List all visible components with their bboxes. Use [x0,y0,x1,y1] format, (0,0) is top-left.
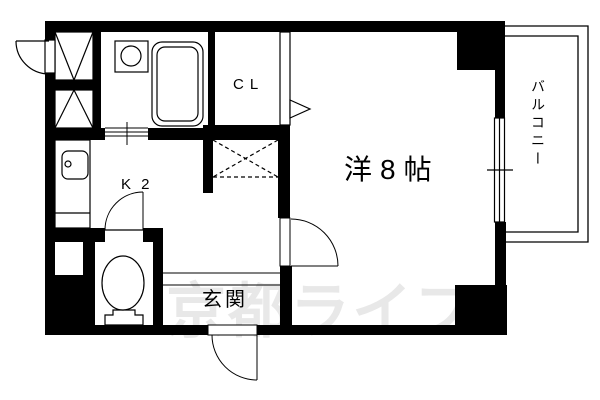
closet-door-leaf [280,32,290,125]
wall-bathroom-left [93,32,101,128]
closet-door-swing-triangle [290,100,310,118]
toilet-door-swing-arc [105,192,143,230]
bathroom-folding-door [105,122,148,145]
bathtub-outer [152,42,203,126]
toilet-tank [105,310,143,325]
wall-bottom [45,325,507,335]
toilet-bowl [102,256,144,310]
wall-bathroom-right [208,32,215,128]
service-door-swing-arc [16,41,49,74]
wall-band-left [55,128,105,140]
toilet-door [105,192,143,230]
bathroom [115,41,203,126]
balcony-window [487,118,513,222]
wall-toilet-right [153,230,163,325]
main-room-door-leaf [280,218,290,266]
wall-fridge-left-stub [203,140,213,193]
front-door-swing-arc [212,335,257,380]
closet-label: CL [233,77,264,92]
front-door-leaf [208,325,257,335]
balcony-outer-line [505,26,588,242]
shaft-x-boxes [55,32,93,128]
wall-top-right-block [457,21,505,70]
shaft-box-lower [55,90,93,128]
exterior-service-door [16,40,55,74]
balcony-outline [505,26,588,242]
wall-below-room-door [280,266,292,325]
wall-below-pipe-space [55,275,95,325]
wall-right-lower [495,222,506,285]
kitchen-counter-outline [55,140,90,228]
front-door [208,325,257,380]
closet-door [280,32,310,125]
wall-room-left [278,140,290,218]
kitchen-label: K 2 [121,177,153,192]
toilet [102,256,144,325]
wall-bottom-right-block [455,285,507,325]
service-door-leaf [45,40,55,73]
main-room-door [280,218,338,266]
entrance-step [163,273,280,285]
wall-top [45,21,457,32]
wall-closet-bottom [203,125,290,140]
wall-counter-bottom [55,228,105,242]
main-room-door-swing-arc [291,219,338,266]
pipe-space [55,242,83,275]
main-room-label: 洋8帖 [344,156,440,184]
toilet-doorway [105,229,143,242]
wall-shaft-divider [55,80,93,90]
floorplan-drawing [0,0,600,400]
wall-right-upper [495,70,505,118]
entrance-label: 玄関 [202,290,248,310]
floorplan: 京都ライフ [0,0,600,400]
shaft-box-upper [55,32,93,80]
balcony-label: バルコニー [531,79,545,169]
wall-pipe-space-right [83,242,95,275]
kitchen-counter [55,140,90,228]
refrigerator-space [213,140,278,177]
